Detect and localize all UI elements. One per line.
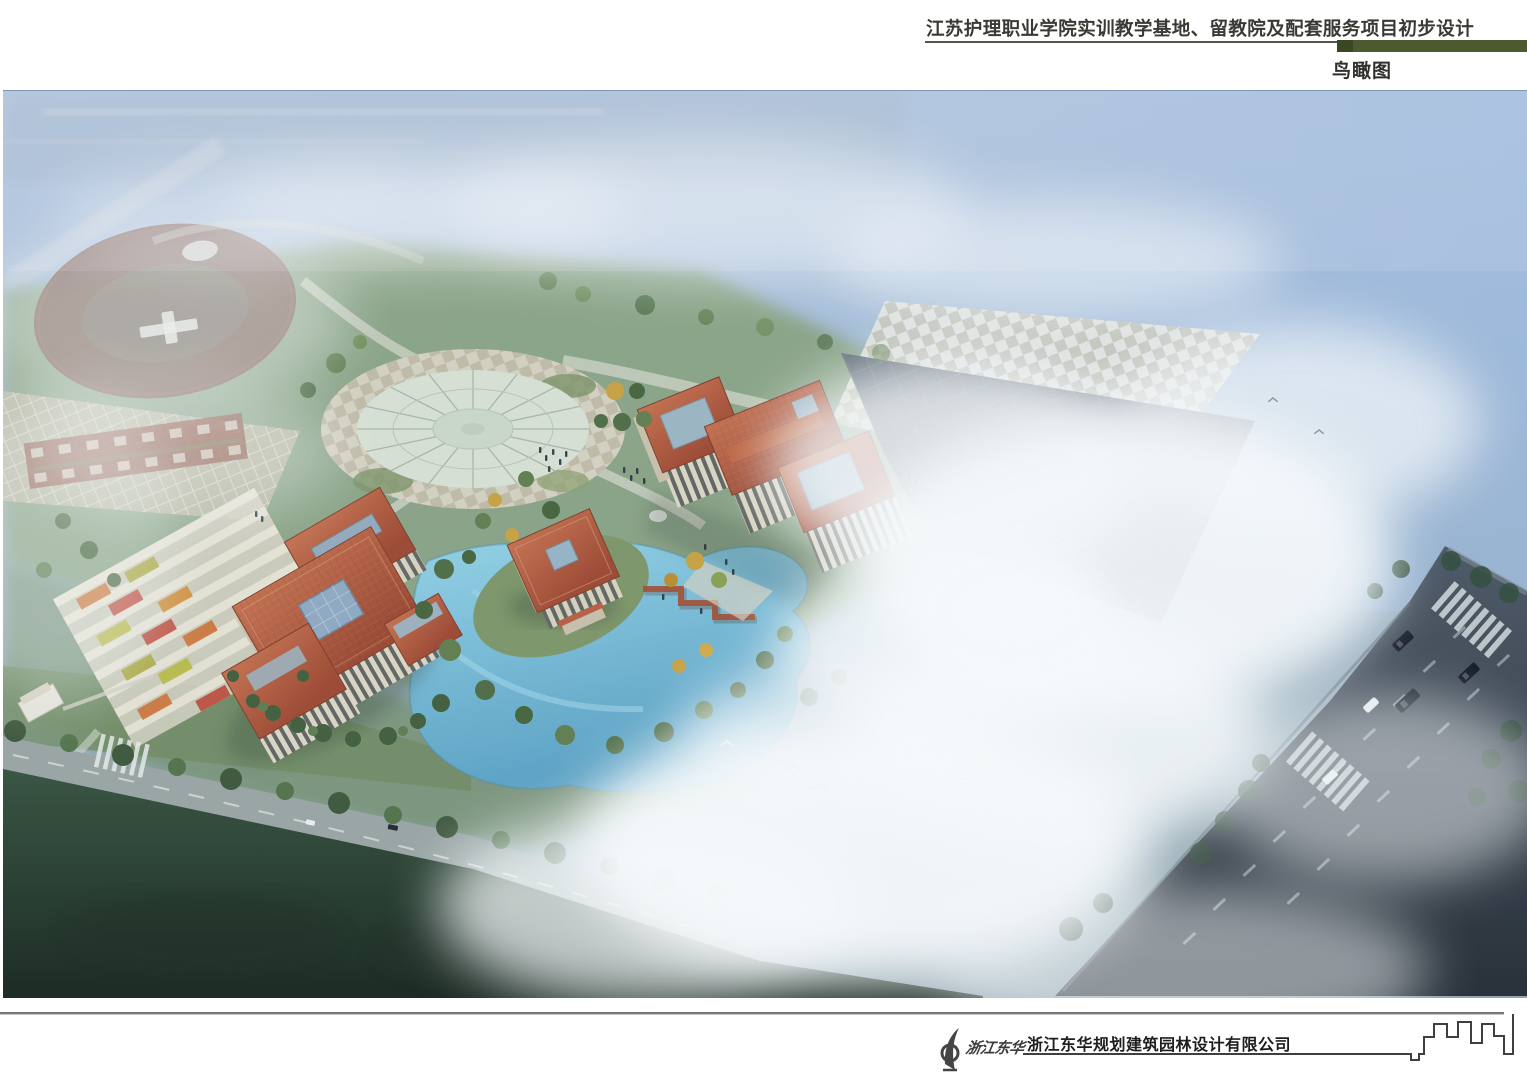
project-title: 江苏护理职业学院实训教学基地、留教院及配套服务项目初步设计: [926, 15, 1474, 41]
skyline-ornament: [1000, 1008, 1527, 1068]
company-logo-icon: [933, 1026, 967, 1072]
title-underline: [925, 41, 1337, 43]
aerial-rendering-canvas: [3, 91, 1527, 998]
presentation-page: 江苏护理职业学院实训教学基地、留教院及配套服务项目初步设计 鸟瞰图: [0, 0, 1527, 1080]
header-accent-bar: [1337, 40, 1527, 52]
horizon-haze: [3, 91, 1527, 271]
view-label: 鸟瞰图: [1332, 56, 1392, 83]
aerial-rendering-image: [3, 90, 1527, 998]
